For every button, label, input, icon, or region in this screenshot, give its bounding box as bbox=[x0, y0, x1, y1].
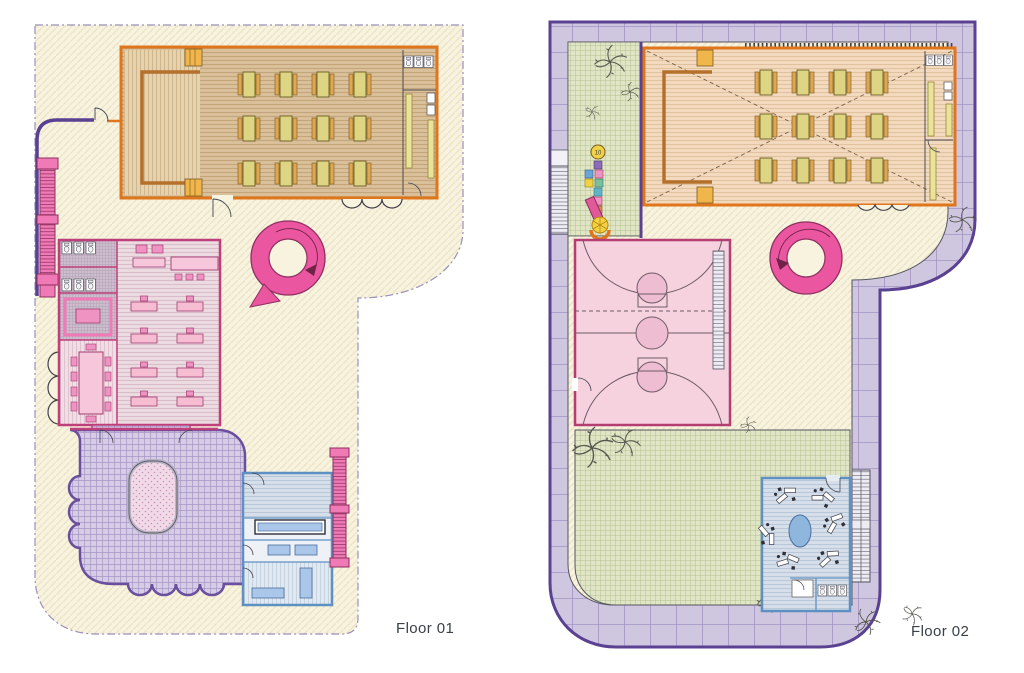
nap-block bbox=[243, 473, 332, 605]
reading-rug bbox=[789, 515, 811, 547]
conference-scallops bbox=[48, 352, 59, 424]
play-garden: 10 bbox=[568, 42, 641, 239]
floor-plans-drawing: 10 bbox=[0, 0, 1024, 673]
exterior-stair-east bbox=[330, 448, 349, 567]
ball-pit bbox=[129, 461, 177, 533]
auditorium-awnings bbox=[342, 199, 402, 208]
floor-plan-sheet: { "floor01": { "label": "Floor 01" }, "f… bbox=[0, 0, 1024, 673]
basketball-court bbox=[572, 240, 730, 425]
classroom bbox=[757, 475, 850, 611]
floor-01-label: Floor 01 bbox=[396, 620, 454, 637]
playroom bbox=[69, 429, 245, 595]
terrace-stair-west bbox=[551, 150, 568, 234]
court-bench bbox=[713, 251, 724, 369]
exterior-stair-west bbox=[37, 158, 58, 297]
hopscotch-number: 10 bbox=[595, 151, 602, 157]
offices-block bbox=[48, 240, 220, 442]
auditorium-void bbox=[644, 45, 955, 210]
floor-02-label: Floor 02 bbox=[911, 623, 969, 640]
meeting-room bbox=[65, 299, 111, 335]
spiral-ramp bbox=[770, 222, 842, 294]
floor-02-plan: 10 bbox=[550, 22, 979, 647]
auditorium bbox=[121, 47, 437, 217]
auditorium-awnings bbox=[858, 205, 909, 210]
floor-01-plan bbox=[35, 25, 463, 634]
terrace-stair-east bbox=[852, 470, 870, 582]
